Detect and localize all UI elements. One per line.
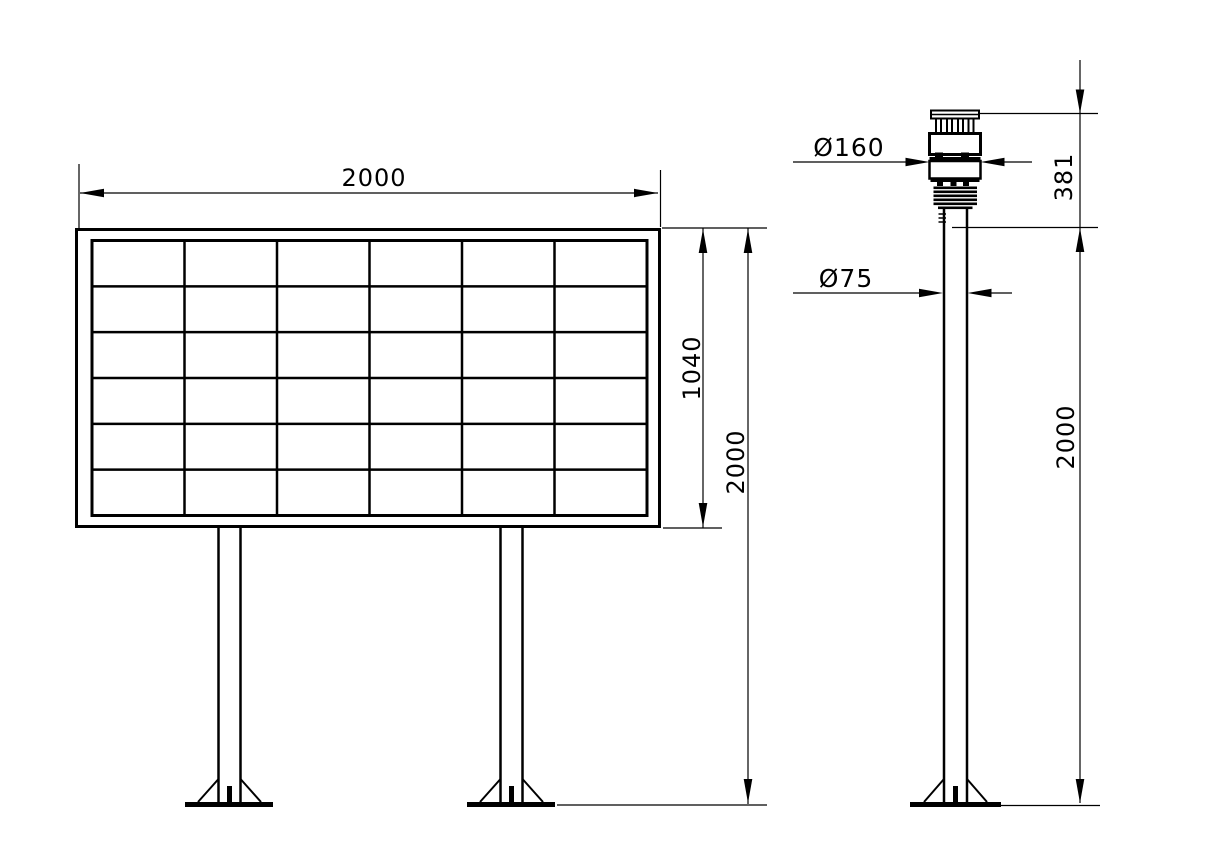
dim-pole-height-label: 2000 xyxy=(1052,404,1080,469)
technical-drawing-svg: 2000 1040 2000 xyxy=(0,0,1228,864)
sensor-bolt xyxy=(935,153,943,158)
dim-sensor-diameter-label: Ø160 xyxy=(813,133,884,162)
side-view: Ø160 Ø75 381 2000 xyxy=(793,60,1100,807)
dimension-pole-diameter: Ø75 xyxy=(793,264,1012,297)
gusset-left xyxy=(924,779,944,802)
panel-grid-lines xyxy=(92,241,647,516)
sensor-post xyxy=(947,119,952,134)
arrowhead-left-icon xyxy=(968,289,992,297)
sensor-post xyxy=(969,119,974,134)
louver-fin xyxy=(934,195,978,198)
arrowhead-right-icon xyxy=(906,158,930,166)
gusset-right xyxy=(967,779,987,802)
louver-fin xyxy=(934,199,978,202)
louver-fin xyxy=(934,187,978,190)
arrowhead-right-icon xyxy=(634,189,658,197)
gusset-right xyxy=(523,779,544,802)
arrowhead-down-icon xyxy=(699,503,708,527)
louver-fin xyxy=(938,207,973,210)
dim-pole-diameter-label: Ø75 xyxy=(819,264,874,293)
base-plate xyxy=(467,802,555,807)
sensor-bolt xyxy=(963,182,969,186)
dimension-front-panel-height: 1040 xyxy=(662,228,767,528)
sensor-bolt xyxy=(961,153,969,158)
left-leg xyxy=(185,528,273,807)
sensor-upper-housing xyxy=(930,134,981,155)
arrowhead-left-icon xyxy=(981,158,1005,166)
cad-drawing-canvas: 2000 1040 2000 xyxy=(0,0,1228,864)
gusset-right xyxy=(241,779,262,802)
sensor-post xyxy=(936,119,941,134)
front-view: 2000 1040 2000 xyxy=(77,164,768,807)
dim-front-panel-height-label: 1040 xyxy=(678,335,706,400)
arrowhead-up-icon xyxy=(1076,228,1085,252)
base-plate xyxy=(185,802,273,807)
sensor-post xyxy=(958,119,963,134)
sensor-bolt xyxy=(937,182,943,186)
arrowhead-down-icon xyxy=(1076,90,1085,114)
anchor-stub xyxy=(227,786,232,802)
dimension-front-width: 2000 xyxy=(79,164,661,230)
mounting-pole xyxy=(910,209,1100,807)
arrowhead-up-icon xyxy=(744,229,753,253)
louver-fin xyxy=(934,203,978,206)
weather-sensor xyxy=(930,111,981,223)
arrowhead-left-icon xyxy=(80,189,104,197)
arrowhead-up-icon xyxy=(699,229,708,253)
dim-sensor-height-label: 381 xyxy=(1050,153,1078,202)
arrowhead-down-icon xyxy=(1076,779,1085,803)
louver-fin xyxy=(934,191,978,194)
dim-front-total-height-label: 2000 xyxy=(722,429,750,494)
base-plate xyxy=(910,802,1001,807)
anchor-stub xyxy=(953,786,958,802)
sensor-lower-housing xyxy=(930,161,981,179)
dimension-sensor-diameter: Ø160 xyxy=(793,133,1032,166)
anchor-stub xyxy=(509,786,514,802)
arrowhead-right-icon xyxy=(919,289,943,297)
radiation-shield-louvers xyxy=(934,187,978,210)
dim-front-width-label: 2000 xyxy=(341,164,406,192)
gusset-left xyxy=(198,779,219,802)
gusset-left xyxy=(480,779,501,802)
sensor-bolt xyxy=(951,182,957,186)
right-leg xyxy=(467,528,555,807)
sensor-flange-band xyxy=(931,178,980,182)
arrowhead-down-icon xyxy=(744,779,753,803)
